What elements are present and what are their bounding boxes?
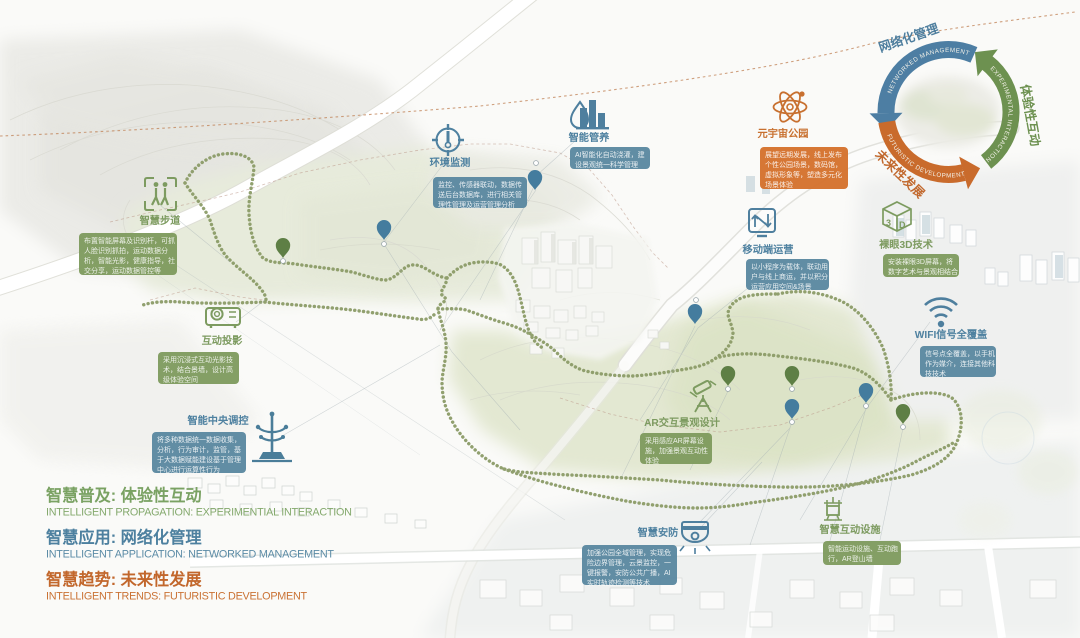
svg-text:智慧步道: 智慧步道 — [140, 214, 182, 227]
svg-text:互动投影: 互动投影 — [202, 334, 244, 347]
svg-text:INTELLIGENT APPLICATION: NETWO: INTELLIGENT APPLICATION: NETWORKED MANAG… — [46, 549, 334, 561]
svg-text:智能中央调控: 智能中央调控 — [187, 414, 249, 427]
svg-text:WIFI信号全覆盖: WIFI信号全覆盖 — [915, 328, 987, 341]
svg-text:裸眼3D技术: 裸眼3D技术 — [879, 238, 934, 251]
svg-text:智慧普及: 体验性互动: 智慧普及: 体验性互动 — [46, 486, 202, 505]
svg-text:环境监测: 环境监测 — [430, 156, 471, 169]
svg-text:智慧应用: 网络化管理: 智慧应用: 网络化管理 — [46, 528, 202, 547]
svg-text:智慧互动设施: 智慧互动设施 — [819, 523, 881, 536]
svg-text:移动端运营: 移动端运营 — [743, 243, 794, 256]
svg-text:AR交互景观设计: AR交互景观设计 — [644, 416, 720, 429]
svg-text:监控、传感器联动，数据传送后台数据库，进行相关管理性管理及运: 监控、传感器联动，数据传送后台数据库，进行相关管理性管理及运营管理分析 — [438, 180, 522, 209]
svg-text:INTELLIGENT PROPAGATION: EXPER: INTELLIGENT PROPAGATION: EXPERIMENTIAL I… — [46, 507, 352, 519]
svg-text:元宇宙公园: 元宇宙公园 — [758, 127, 809, 140]
svg-text:INTELLIGENT TRENDS: FUTURISTIC: INTELLIGENT TRENDS: FUTURISTIC DEVELOPME… — [46, 591, 308, 603]
svg-text:3: 3 — [886, 218, 891, 228]
svg-text:智慧趋势: 未来性发展: 智慧趋势: 未来性发展 — [46, 570, 202, 589]
svg-text:智能管养: 智能管养 — [569, 131, 611, 144]
svg-text:智慧安防: 智慧安防 — [638, 526, 679, 539]
svg-text:D: D — [899, 220, 906, 230]
